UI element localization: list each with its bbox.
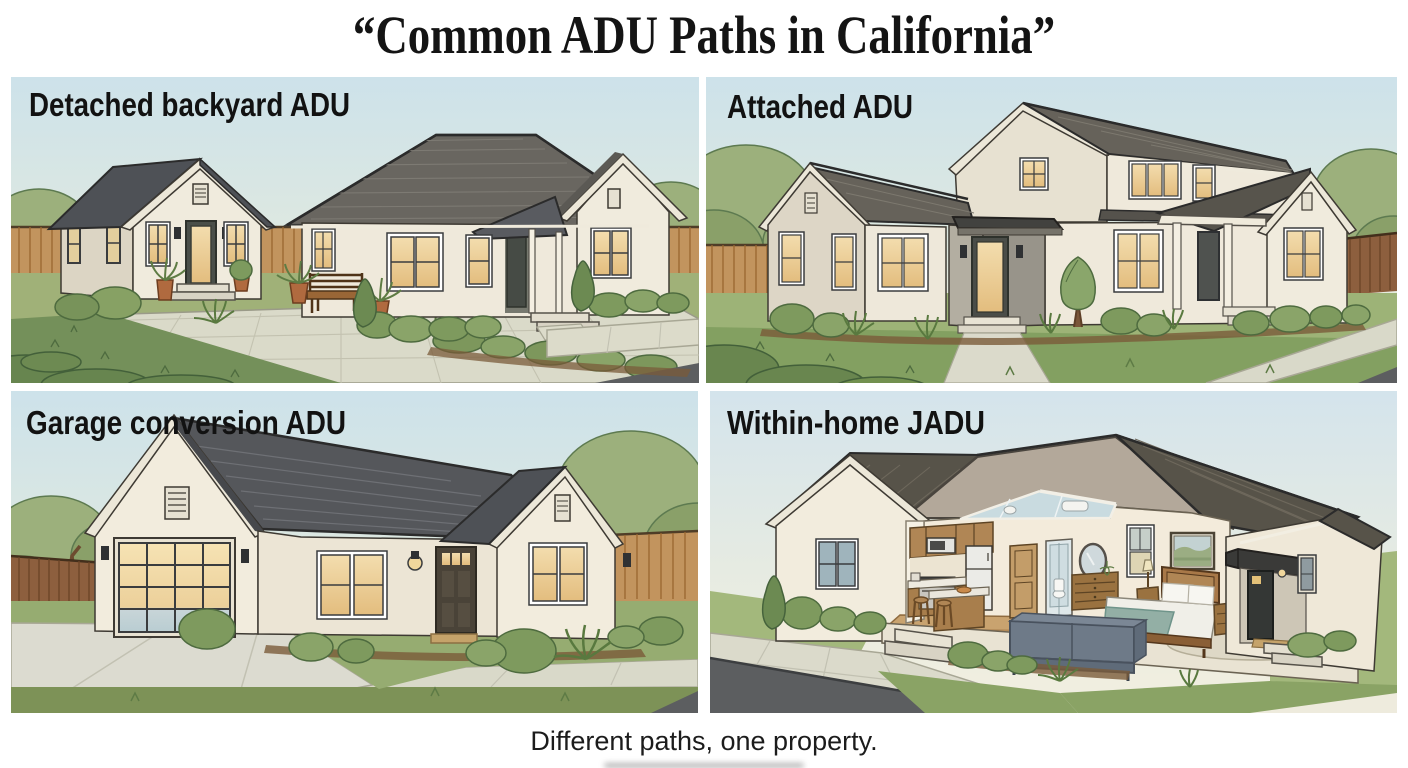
svg-text:Within-home JADU: Within-home JADU	[727, 404, 985, 441]
svg-text:Attached ADU: Attached ADU	[727, 88, 913, 125]
svg-text:Garage conversion ADU: Garage conversion ADU	[26, 404, 346, 441]
svg-text:Detached backyard ADU: Detached backyard ADU	[29, 86, 350, 123]
